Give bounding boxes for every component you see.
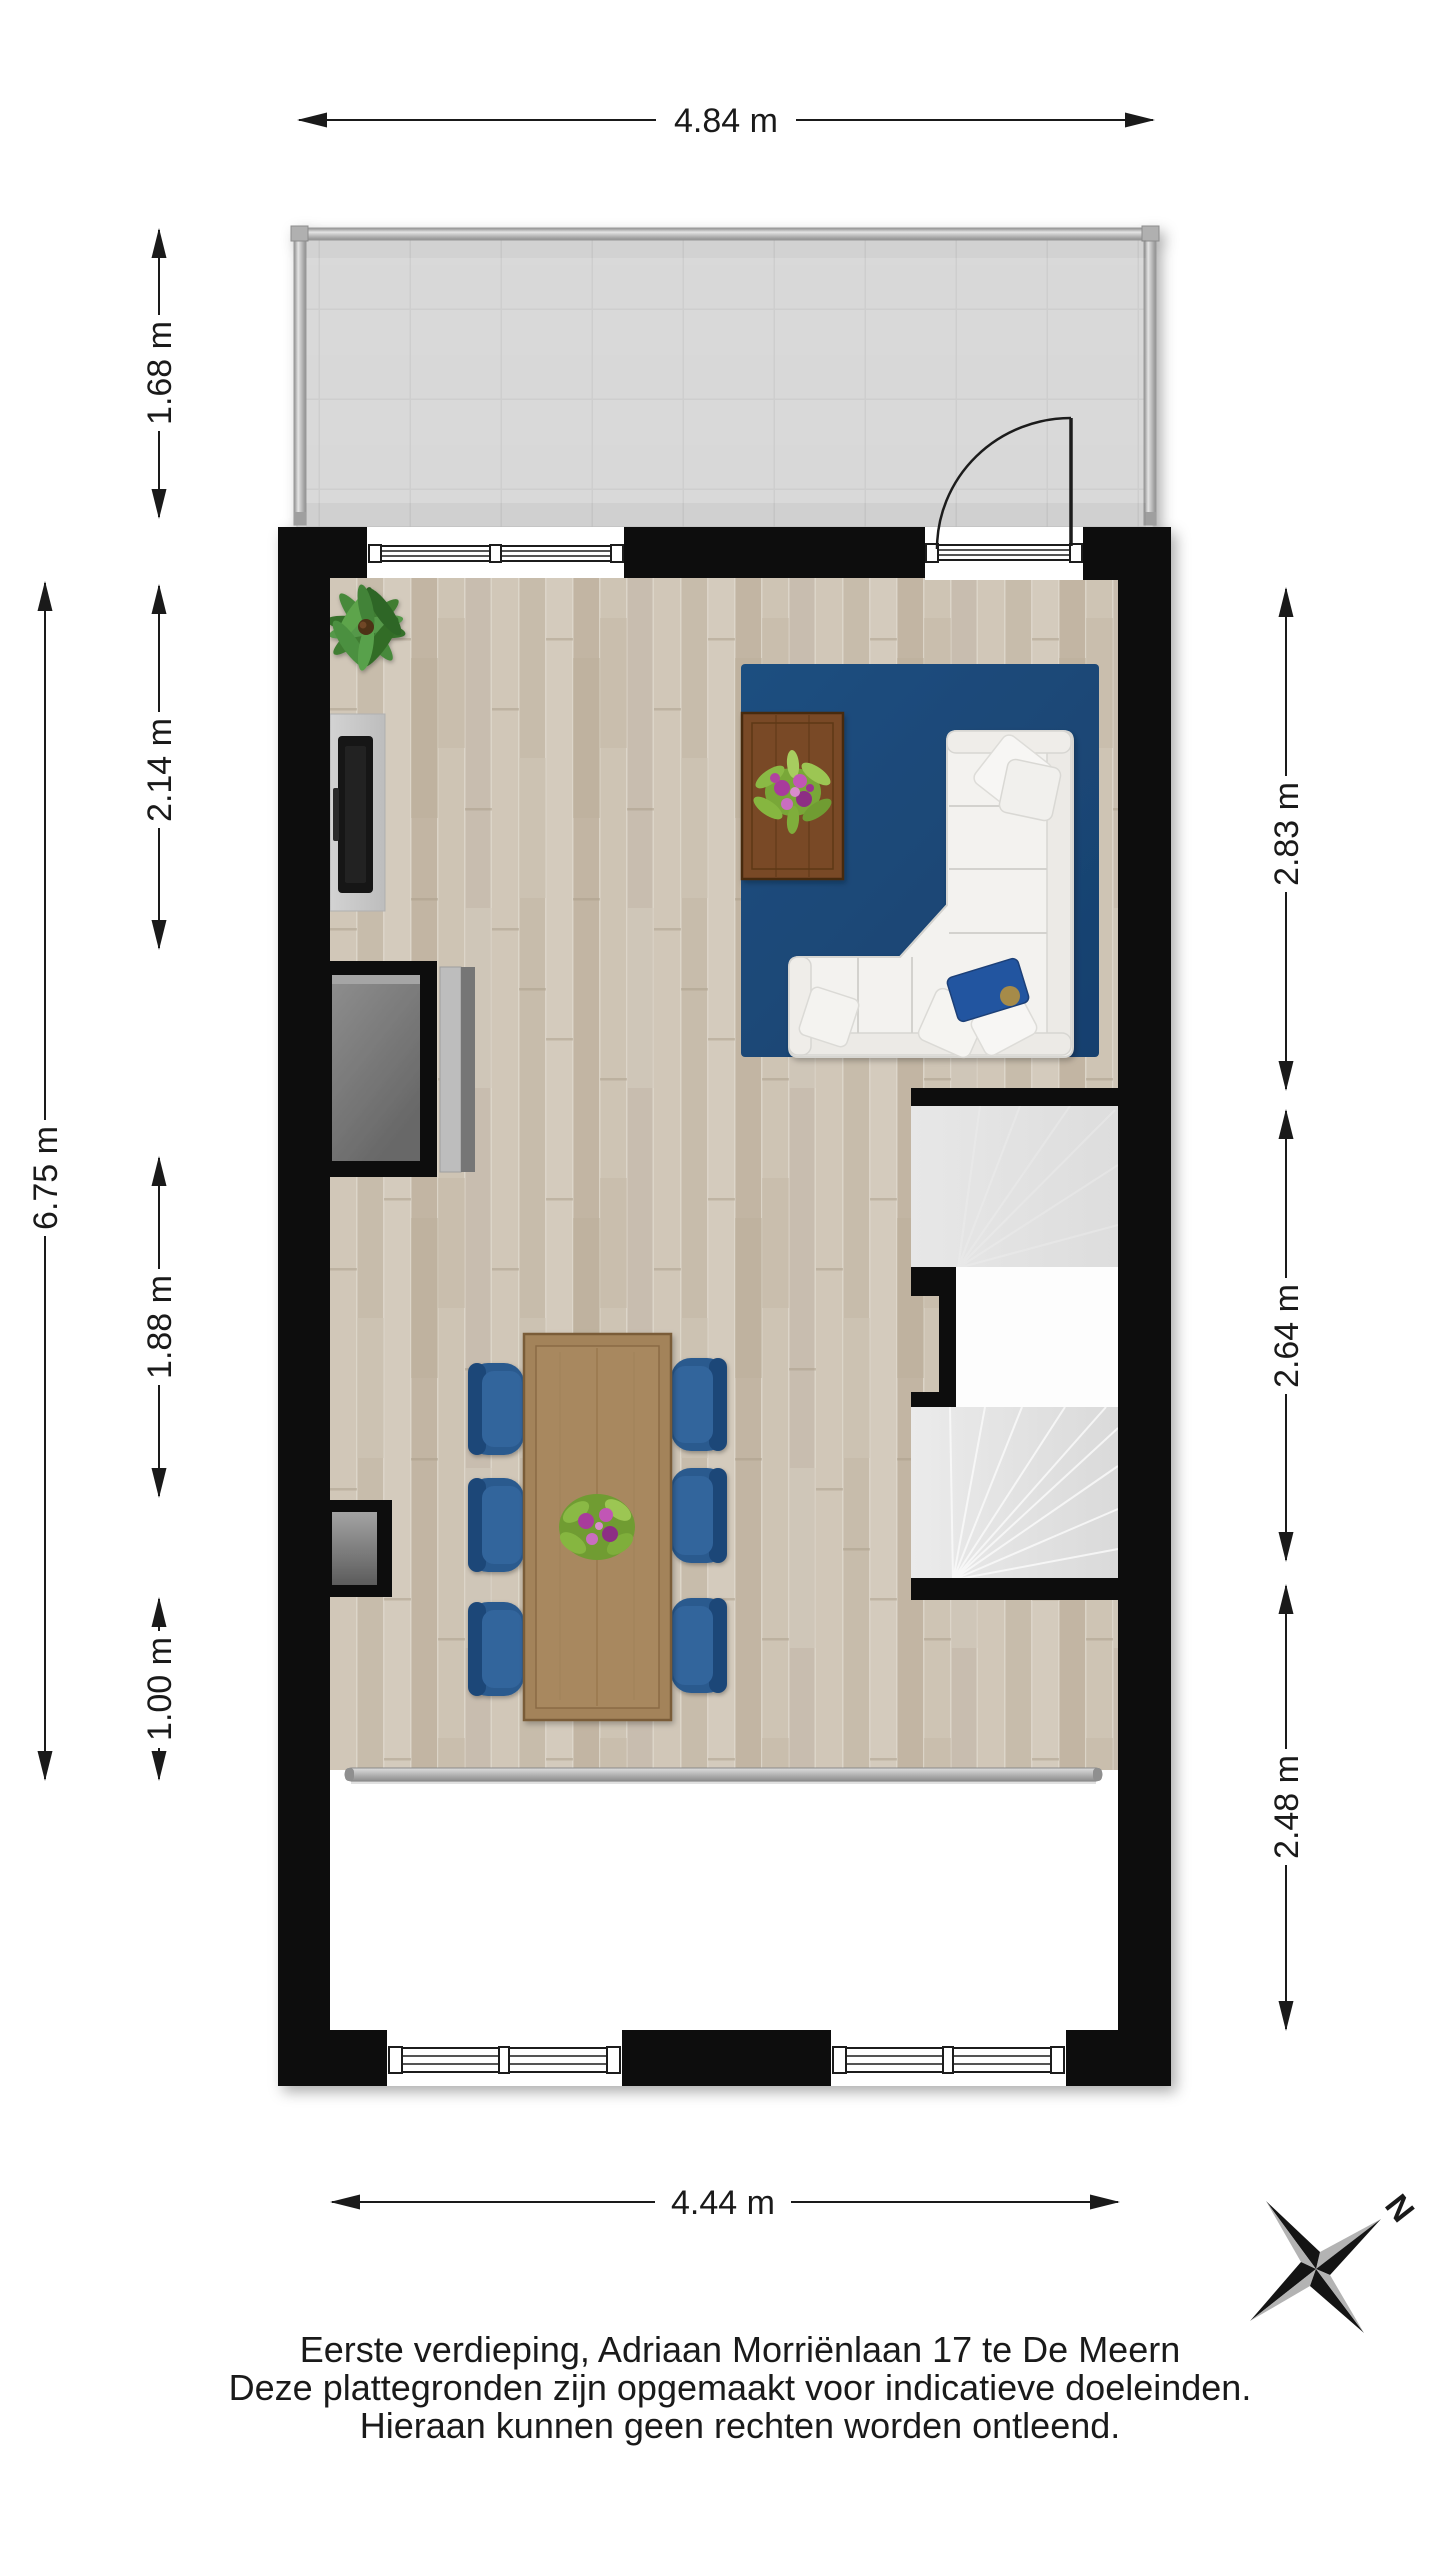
svg-text:1.68 m: 1.68 m xyxy=(141,321,179,425)
svg-text:1.00 m: 1.00 m xyxy=(141,1637,179,1741)
svg-text:1.88 m: 1.88 m xyxy=(141,1275,179,1379)
svg-text:6.75 m: 6.75 m xyxy=(27,1126,65,1230)
svg-text:Hieraan kunnen geen rechten wo: Hieraan kunnen geen rechten worden ontle… xyxy=(360,2405,1121,2446)
svg-text:2.64 m: 2.64 m xyxy=(1268,1284,1306,1388)
svg-text:4.84 m: 4.84 m xyxy=(674,102,778,140)
svg-text:Eerste verdieping, Adriaan Mor: Eerste verdieping, Adriaan Morriënlaan 1… xyxy=(300,2329,1181,2370)
svg-text:4.44 m: 4.44 m xyxy=(671,2184,775,2222)
svg-text:2.14 m: 2.14 m xyxy=(141,718,179,822)
svg-text:Deze plattegronden zijn opgema: Deze plattegronden zijn opgemaakt voor i… xyxy=(229,2367,1252,2408)
svg-text:2.48 m: 2.48 m xyxy=(1268,1755,1306,1859)
svg-text:2.83 m: 2.83 m xyxy=(1268,782,1306,886)
